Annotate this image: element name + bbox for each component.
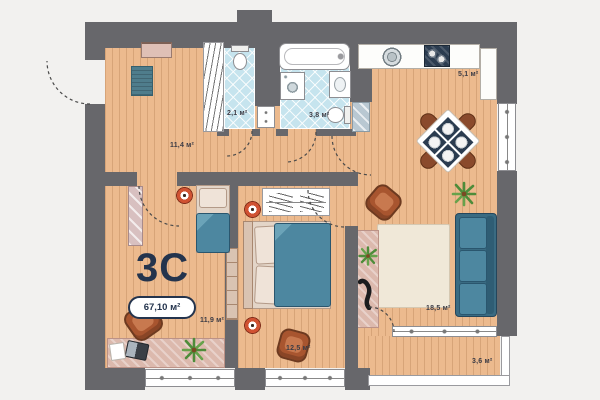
bedroom-1-mirror — [128, 186, 143, 246]
wall-wc-bath-niche — [255, 42, 280, 106]
bathroom-toilet-tank — [344, 106, 351, 124]
wall-wc-bottom-b — [252, 129, 260, 136]
wall-bath-bottom-b — [316, 129, 356, 136]
wall-bedroom-2-right-stub — [345, 172, 358, 186]
wall-bedroom-2-top — [238, 172, 345, 186]
kitchen-window — [498, 103, 516, 171]
bedroom-2-window — [265, 369, 345, 387]
corridor-runner-rug — [357, 230, 379, 328]
bathroom-toilet-icon — [327, 107, 344, 123]
papers-icon — [109, 342, 126, 361]
bedroom-2-lamp-top — [244, 201, 261, 218]
entry-doormat — [131, 66, 153, 96]
double-bed-duvet — [274, 223, 331, 307]
bedroom-2-lamp-bottom — [244, 317, 261, 334]
sofa — [455, 213, 497, 317]
balcony-glazing-bottom — [368, 375, 510, 386]
wall-hall-bedroom-a — [105, 172, 137, 186]
kitchen-area-label: 5,1 м² — [458, 71, 478, 78]
bathroom-area-label: 3,8 м² — [309, 112, 329, 119]
cooktop-icon — [424, 45, 450, 67]
living-area-label: 18,5 м² — [426, 305, 450, 312]
hall-mirror-panel — [352, 102, 370, 132]
washing-machine-icon — [280, 72, 305, 100]
wc-cabinet — [257, 106, 275, 128]
balcony-area-label: 3,6 м² — [472, 358, 492, 365]
hallway-coat-closet — [203, 42, 224, 132]
wc-toilet-tank — [231, 45, 249, 52]
unit-label: 3C — [136, 248, 189, 288]
bedroom-1-area-label: 11,9 м² — [200, 317, 224, 324]
entry-bench — [141, 42, 172, 58]
wc-toilet-icon — [233, 53, 247, 70]
wall-top-notch — [237, 10, 272, 24]
bathtub-icon — [279, 43, 350, 70]
living-room-rug — [377, 224, 450, 308]
balcony-floor — [368, 336, 500, 376]
wall-right-upper — [497, 48, 517, 104]
double-bed-headboard — [243, 221, 253, 309]
wc-area-label: 2,1 м² — [227, 110, 247, 117]
bedroom-1-window — [145, 369, 235, 387]
single-bed-pillow — [199, 188, 227, 208]
wall-left-lower — [85, 104, 105, 390]
wall-bottom-right — [345, 368, 370, 390]
single-bed-blanket — [196, 213, 230, 253]
bedroom-shelving — [226, 248, 238, 320]
wall-bedroom-2-right — [345, 226, 358, 368]
bedroom-1-lamp — [176, 187, 193, 204]
wall-bottom-left — [85, 368, 145, 390]
kitchen-sink-icon — [382, 47, 402, 67]
wall-hall-bedroom-b — [177, 172, 238, 186]
wall-bath-bottom-a — [276, 129, 288, 136]
bathroom-sink-icon — [329, 71, 351, 98]
kitchen-tall-cabinet — [480, 48, 497, 100]
total-area-badge: 67,10 м² — [128, 296, 196, 319]
wall-bottom-mid — [235, 368, 265, 390]
bedroom-2-wardrobe — [262, 188, 330, 216]
floor-plan: 11,4 м² 2,1 м² 3,8 м² 5,1 м² 18,5 м² 11,… — [0, 0, 600, 400]
bedroom-2-area-label: 12,5 м² — [286, 345, 310, 352]
wall-right-lower — [497, 171, 517, 336]
balcony-window-band — [392, 326, 497, 337]
hallway-area-label: 11,4 м² — [170, 142, 194, 149]
kitchen-counter — [358, 44, 480, 69]
